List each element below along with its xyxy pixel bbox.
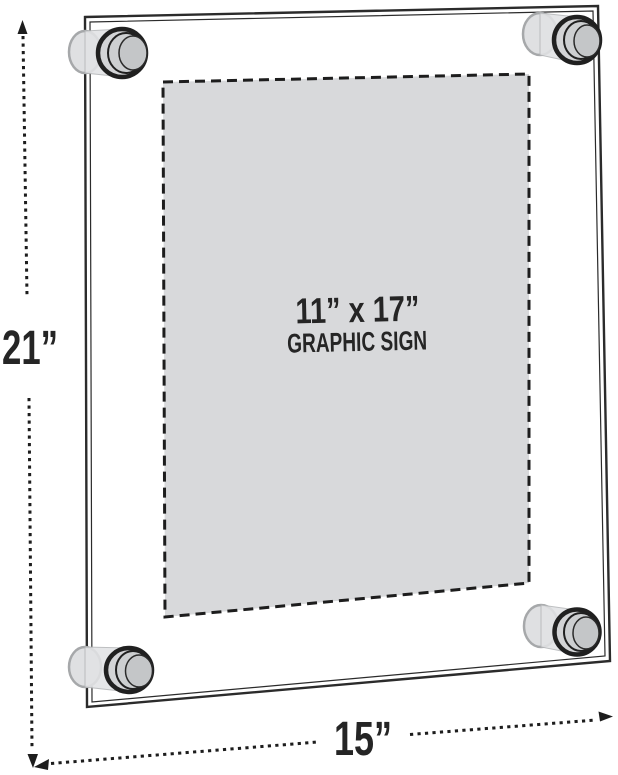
height-arrow-up-icon (18, 20, 28, 34)
height-dimension-line-lower (29, 398, 32, 748)
width-dimension: 15” (34, 712, 613, 771)
height-dimension: 21” (2, 20, 58, 768)
width-dimension-line-left (51, 742, 318, 764)
graphic-size-label: 11” x 17” (295, 288, 420, 332)
height-dimension-line-upper (23, 36, 27, 296)
standoff-bottom-right-icon (524, 605, 600, 655)
product-diagram: 11” x 17” GRAPHIC SIGN 21” (0, 0, 618, 775)
width-dimension-label: 15” (334, 713, 392, 766)
height-dimension-label: 21” (2, 322, 58, 375)
width-arrow-right-icon (599, 712, 614, 722)
standoff-bottom-left-icon (69, 647, 153, 692)
standoff-top-left-icon (69, 29, 147, 77)
width-arrow-left-icon (34, 759, 49, 770)
width-dimension-line-right (410, 720, 596, 735)
sign-holder-drawing: 11” x 17” GRAPHIC SIGN 21” (0, 0, 618, 775)
graphic-sign-label: GRAPHIC SIGN (287, 325, 428, 358)
